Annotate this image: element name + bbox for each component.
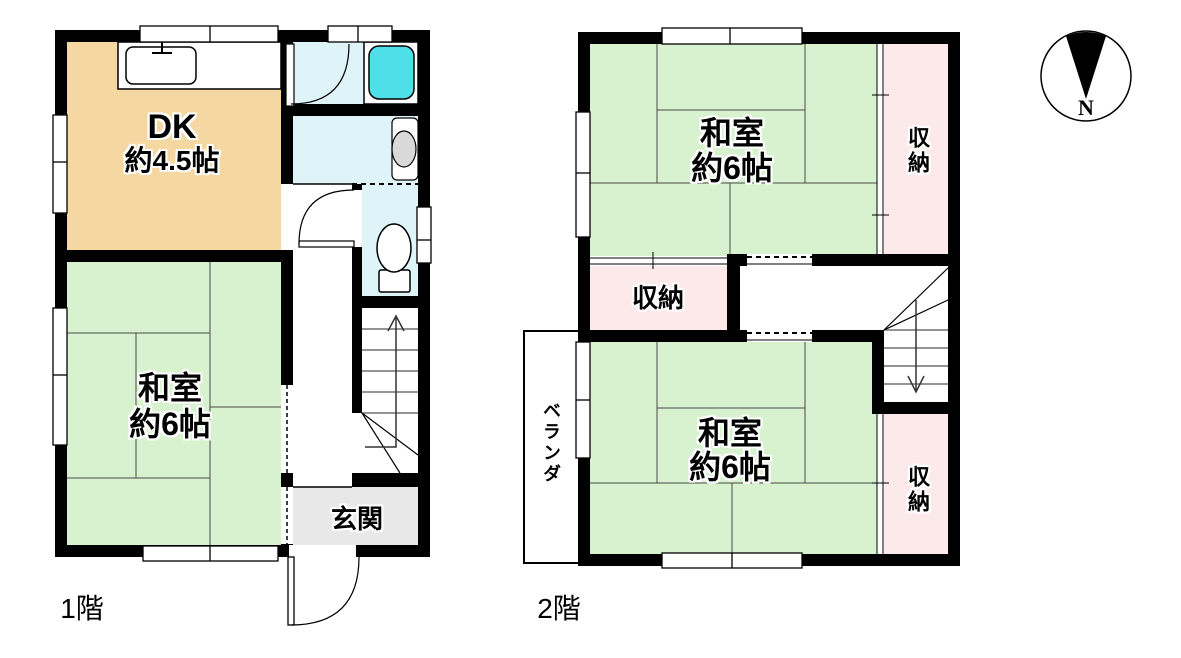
floorplan-drawing — [0, 0, 1181, 658]
washbasin — [392, 118, 418, 180]
toilet-door — [299, 190, 362, 247]
dk-room-label-line2: 約4.5帖 — [125, 147, 220, 175]
genkan-label: 玄関 — [331, 506, 383, 532]
floor2-name-label: 2階 — [537, 595, 581, 623]
window-washitsu-lower-bottom — [662, 553, 802, 568]
window-washitsu-lower-left — [576, 342, 590, 458]
window-washitsu-upper-top — [662, 28, 802, 44]
window-toilet-right — [417, 207, 431, 263]
bathtub — [364, 42, 418, 104]
window-washitsu-bottom — [143, 546, 278, 561]
washitsu-f1-label-line1: 和室 — [138, 372, 202, 404]
veranda-label: ベランダ — [542, 401, 560, 485]
stairs-down-arrow — [908, 300, 924, 392]
storage-middle-label: 収納 — [632, 285, 684, 311]
floor1-plan — [53, 26, 431, 625]
compass-north-label: N — [1078, 97, 1094, 119]
window-washitsu-upper-left — [576, 112, 590, 237]
washitsu-upper-label-line2: 約6帖 — [691, 152, 773, 184]
toilet-fixture — [377, 224, 411, 292]
hallway-openings — [747, 254, 812, 342]
window-dk-left — [53, 115, 67, 213]
storage-upper-label: 収納 — [906, 126, 928, 176]
window-bathroom-top — [328, 26, 392, 42]
door-arc-entrance — [291, 557, 359, 625]
floor1-name-label: 1階 — [60, 595, 104, 623]
window-dk-top — [140, 26, 278, 42]
window-washitsu-left — [53, 308, 67, 445]
washitsu-f1-label-line2: 約6帖 — [129, 408, 211, 440]
floorplan-page: DK 約4.5帖 和室 約6帖 玄関 和室 約6帖 和室 約6帖 収納 収納 収… — [0, 0, 1181, 658]
washitsu-lower-label-line1: 和室 — [698, 417, 762, 449]
washitsu-lower-label-line2: 約6帖 — [689, 451, 771, 483]
dk-room-label-line1: DK — [147, 110, 196, 144]
washitsu-upper-label-line1: 和室 — [700, 117, 764, 149]
door-arc-toilet — [299, 190, 354, 244]
stairs-floor2 — [884, 268, 948, 392]
storage-lower-label: 収納 — [906, 465, 928, 515]
kitchen-counter — [118, 38, 281, 89]
entrance-door — [288, 545, 359, 625]
stairs-floor1 — [362, 316, 418, 473]
